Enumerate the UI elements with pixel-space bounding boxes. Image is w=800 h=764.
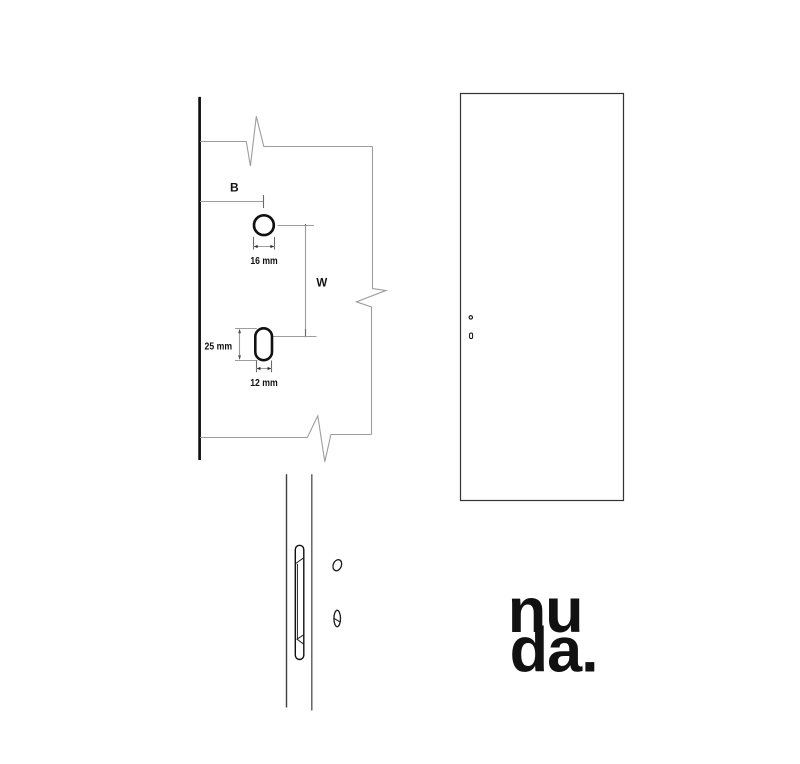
svg-text:B: B — [230, 180, 239, 194]
svg-text:25 mm: 25 mm — [205, 341, 233, 353]
svg-text:da.: da. — [510, 615, 598, 685]
svg-text:W: W — [316, 277, 327, 289]
svg-text:16 mm: 16 mm — [250, 255, 277, 267]
svg-text:12 mm: 12 mm — [250, 377, 278, 389]
